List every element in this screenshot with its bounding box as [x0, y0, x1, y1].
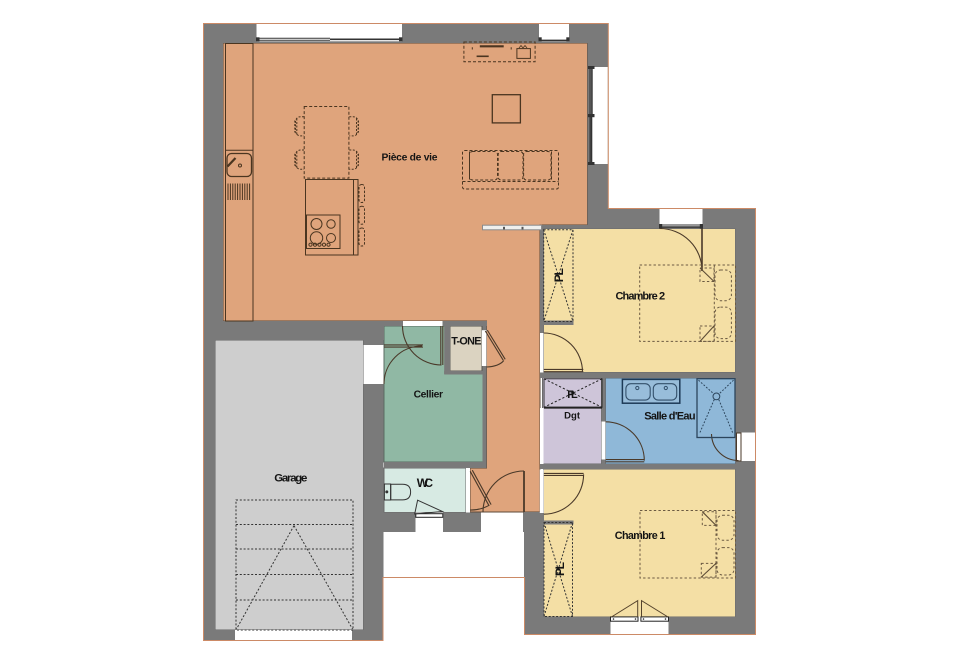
svg-text:Garage: Garage: [274, 473, 307, 485]
svg-text:WC: WC: [417, 476, 434, 490]
svg-text:PL: PL: [553, 562, 567, 576]
svg-text:Chambre 2: Chambre 2: [616, 291, 666, 303]
svg-text:Dgt: Dgt: [564, 411, 581, 422]
svg-text:T-ONE: T-ONE: [451, 335, 481, 347]
svg-text:Pièce de vie: Pièce de vie: [382, 153, 438, 164]
svg-text:Chambre 1: Chambre 1: [615, 530, 666, 542]
svg-text:Cellier: Cellier: [414, 389, 443, 400]
svg-text:Salle d'Eau: Salle d'Eau: [644, 411, 695, 423]
svg-text:PL: PL: [567, 389, 578, 401]
svg-text:PL: PL: [552, 268, 566, 282]
